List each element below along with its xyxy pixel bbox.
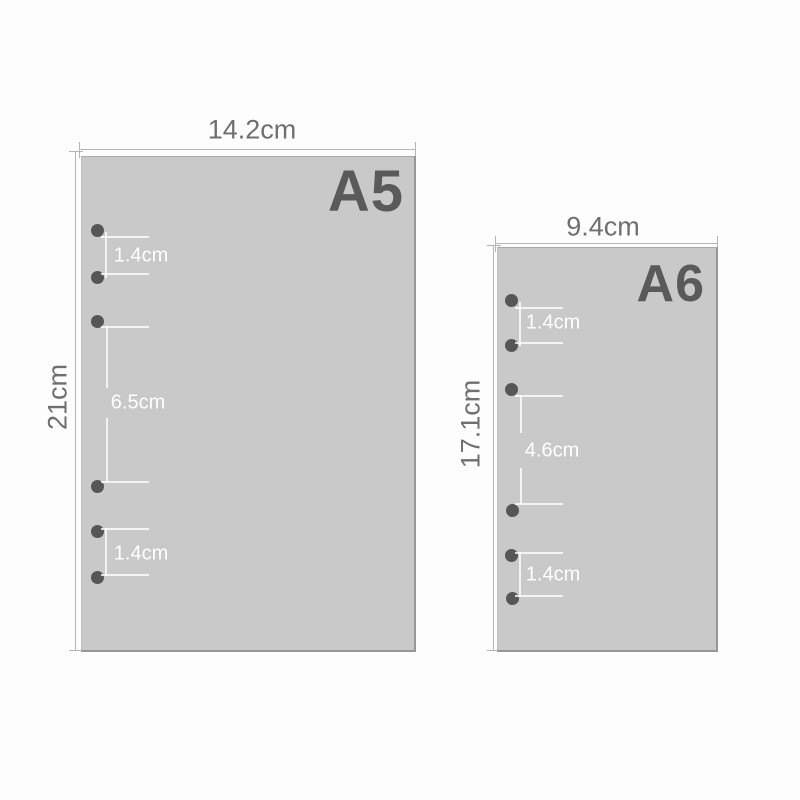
a6-gap-bottom-label: 1.4cm (526, 564, 580, 587)
a5-binder-hole (91, 571, 104, 584)
a6-gap-top-tick-upper (515, 307, 563, 309)
a6-gap-bottom-tick-upper (515, 552, 563, 554)
a5-gap-middle-tick-lower (101, 481, 149, 483)
a6-gap-bottom-tick-lower (515, 595, 563, 597)
a6-binder-hole (505, 339, 518, 352)
a6-gap-top-connector (519, 302, 521, 346)
a5-gap-top-tick-upper (101, 236, 149, 238)
a5-height-label: 21cm (43, 364, 74, 430)
a6-gap-middle-connector (520, 395, 522, 433)
a6-width-dimension-line (495, 243, 718, 244)
a5-gap-bottom-tick-lower (101, 574, 149, 576)
a6-gap-middle-tick-upper (515, 395, 563, 397)
a6-gap-middle-tick-lower (515, 503, 563, 505)
a6-height-label: 17.1cm (456, 380, 487, 469)
a6-gap-middle-connector (520, 468, 522, 504)
a6-binder-hole (505, 549, 518, 562)
a6-width-label: 9.4cm (566, 212, 640, 243)
a5-gap-bottom-tick-upper (101, 528, 149, 530)
a5-gap-middle-connector (106, 326, 108, 388)
a6-height-dimension-line (493, 245, 494, 651)
a6-gap-middle-label: 4.6cm (525, 440, 579, 463)
a5-gap-top-tick-lower (101, 273, 149, 275)
a5-height-dimension-line (75, 151, 76, 651)
a6-size-label: A6 (637, 258, 705, 310)
a5-gap-middle-connector (106, 418, 108, 482)
a5-size-label: A5 (328, 163, 404, 221)
a6-gap-top-label: 1.4cm (526, 312, 580, 335)
a6-gap-top-tick-lower (515, 342, 563, 344)
a6-binder-hole (505, 294, 518, 307)
a6-binder-hole (506, 504, 519, 517)
a5-gap-bottom-label: 1.4cm (114, 543, 168, 566)
a5-gap-middle-label: 6.5cm (111, 392, 165, 415)
a5-binder-hole (91, 525, 104, 538)
a5-gap-bottom-connector (105, 528, 107, 576)
paper-size-diagram: 14.2cm 21cm A5 1.4cm 6.5cm 1.4cm 9.4cm 1… (0, 0, 800, 800)
a5-gap-top-connector (105, 232, 107, 278)
a5-gap-top-label: 1.4cm (114, 245, 168, 268)
a6-gap-bottom-connector (519, 552, 521, 597)
a6-binder-hole (506, 592, 519, 605)
a5-width-dimension-line (79, 149, 416, 150)
a5-gap-middle-tick-upper (101, 326, 149, 328)
a5-width-label: 14.2cm (208, 115, 297, 146)
